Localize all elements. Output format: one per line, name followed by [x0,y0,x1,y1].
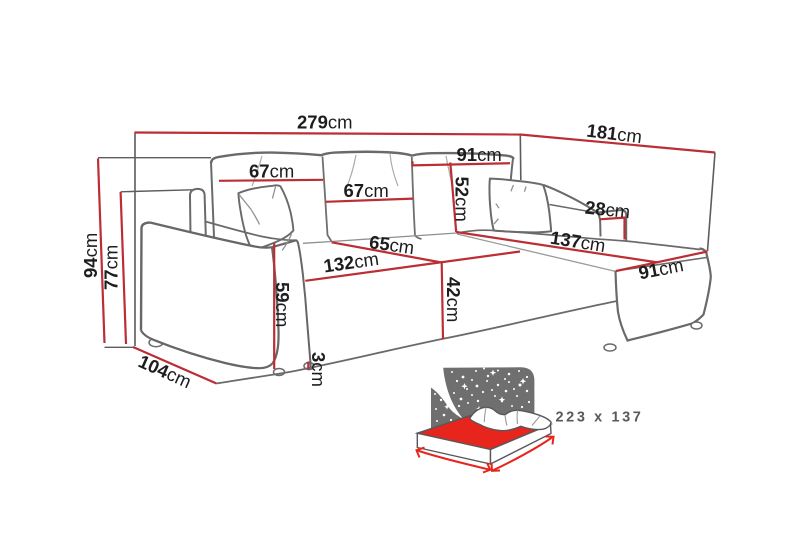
svg-text:3cm: 3cm [308,352,329,387]
svg-text:42cm: 42cm [443,277,464,322]
svg-text:279cm: 279cm [297,112,353,133]
svg-text:59cm: 59cm [272,282,293,327]
svg-text:52cm: 52cm [452,177,473,222]
svg-text:223 x 137: 223 x 137 [556,409,644,425]
svg-text:77cm: 77cm [101,245,122,290]
svg-text:91cm: 91cm [457,144,502,165]
svg-text:94cm: 94cm [80,233,101,278]
svg-text:67cm: 67cm [344,180,389,201]
svg-text:67cm: 67cm [249,161,294,182]
